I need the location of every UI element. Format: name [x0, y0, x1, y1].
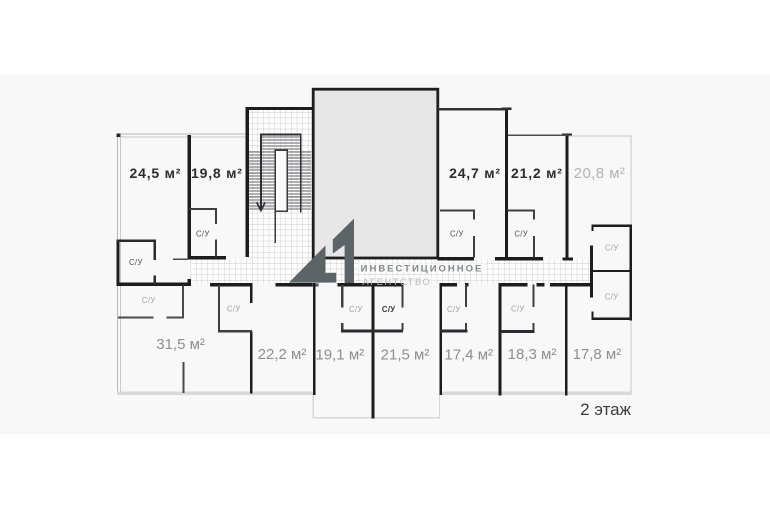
svg-text:С/У: С/У [129, 258, 143, 267]
svg-text:С/У: С/У [227, 304, 241, 313]
svg-text:С/У: С/У [511, 305, 525, 314]
svg-text:С/У: С/У [605, 244, 619, 253]
svg-text:С/У: С/У [349, 305, 363, 314]
svg-text:21,5 м²: 21,5 м² [381, 346, 430, 363]
svg-text:С/У: С/У [450, 230, 464, 239]
svg-text:19,8 м²: 19,8 м² [191, 165, 243, 181]
svg-text:С/У: С/У [196, 230, 210, 239]
svg-text:17,4 м²: 17,4 м² [444, 346, 493, 363]
svg-text:С/У: С/У [514, 230, 528, 239]
svg-text:19,1 м²: 19,1 м² [315, 346, 364, 363]
svg-text:С/У: С/У [142, 296, 156, 305]
svg-text:С/У: С/У [447, 305, 461, 314]
svg-text:22,2 м²: 22,2 м² [258, 346, 307, 363]
svg-text:17,8 м²: 17,8 м² [573, 346, 622, 363]
svg-text:АГЕНТСТВО: АГЕНТСТВО [362, 277, 431, 288]
svg-text:24,5 м²: 24,5 м² [130, 165, 182, 181]
svg-text:18,3 м²: 18,3 м² [508, 346, 557, 363]
svg-text:20,8 м²: 20,8 м² [574, 165, 625, 182]
svg-text:21,2 м²: 21,2 м² [511, 165, 563, 181]
svg-text:2 этаж: 2 этаж [580, 400, 632, 419]
svg-text:С/У: С/У [382, 305, 396, 314]
svg-text:С/У: С/У [605, 293, 619, 302]
svg-text:24,7 м²: 24,7 м² [449, 165, 501, 181]
svg-text:31,5 м²: 31,5 м² [156, 336, 205, 353]
svg-text:ИНВЕСТИЦИОННОЕ: ИНВЕСТИЦИОННОЕ [361, 263, 484, 274]
